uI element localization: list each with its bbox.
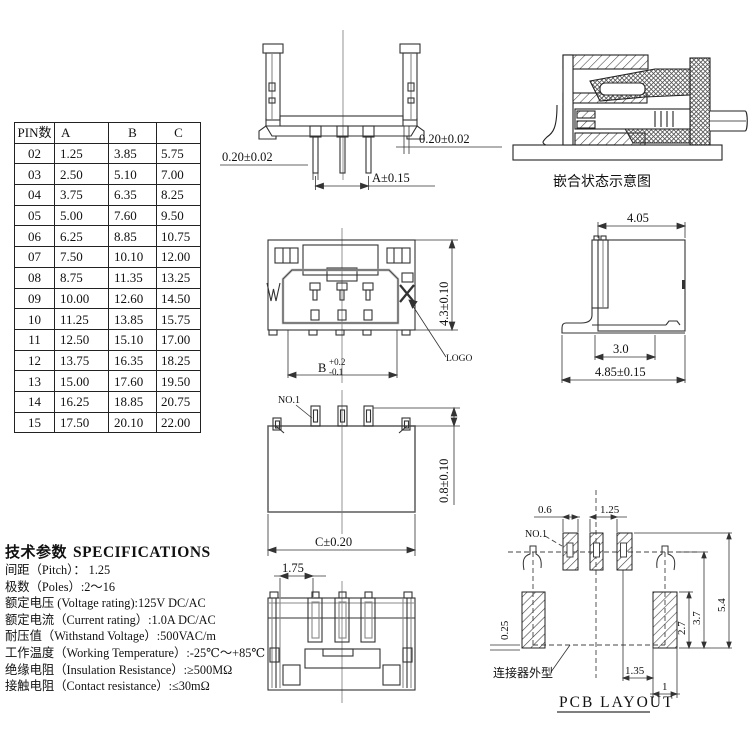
table-cell: 09 [15, 288, 55, 309]
spec-line: 耐压值（Withstand Voltage）:500VAC/m [5, 628, 273, 645]
specifications-title-en: SPECIFICATIONS [73, 544, 211, 561]
connector-outline-label: 连接器外型 [493, 665, 553, 680]
dim-b-plus: +0.2 [329, 357, 345, 367]
table-cell: 7.00 [157, 164, 201, 185]
table-row: 077.5010.1012.00 [15, 247, 201, 268]
table-cell: 14.50 [157, 288, 201, 309]
table-cell: 04 [15, 185, 55, 206]
table-cell: 3.85 [109, 143, 157, 164]
dim-pitch: 1.25 [600, 504, 620, 516]
spec-lines: 间距（Pitch）： 1.25极数（Poles）:2～16额定电压 (Volta… [5, 562, 273, 695]
table-cell: 19.50 [157, 371, 201, 392]
table-cell: 7.50 [55, 247, 109, 268]
table-cell: 5.10 [109, 164, 157, 185]
table-cell: 13.85 [109, 309, 157, 330]
table-cell: 2.50 [55, 164, 109, 185]
table-row: 1213.7516.3518.25 [15, 350, 201, 371]
pcb-pin1-label: NO.1 [525, 529, 547, 540]
table-cell: 08 [15, 267, 55, 288]
table-cell: 10.10 [109, 247, 157, 268]
table-cell: 12.50 [55, 329, 109, 350]
table-cell: 18.85 [109, 391, 157, 412]
table-cell: 20.10 [109, 412, 157, 433]
dim-pad-width: 0.6 [538, 504, 552, 516]
table-cell: 8.85 [109, 226, 157, 247]
table-cell: 12.60 [109, 288, 157, 309]
pin-table-header: PIN数 [15, 123, 55, 144]
table-cell: 8.25 [157, 185, 201, 206]
table-cell: 18.25 [157, 350, 201, 371]
dim-c: C±0.20 [315, 535, 352, 549]
table-cell: 16.35 [109, 350, 157, 371]
dim-mid-width: 3.0 [613, 342, 629, 356]
table-cell: 14 [15, 391, 55, 412]
drawing-front-section: 0.20±0.02 A±0.15 0.20±0.02 [220, 28, 505, 193]
table-row: 1011.2513.8515.75 [15, 309, 201, 330]
table-row: 1416.2518.8520.75 [15, 391, 201, 412]
table-cell: 10.00 [55, 288, 109, 309]
pin1-label: NO.1 [278, 395, 300, 406]
table-cell: 17.60 [109, 371, 157, 392]
dim-b-minus: -0.1 [329, 367, 343, 377]
table-cell: 15.75 [157, 309, 201, 330]
pin-table-header: C [157, 123, 201, 144]
pad-fitting-left [522, 592, 545, 648]
datasheet-page: PIN数ABC 021.253.855.75032.505.107.00043.… [0, 0, 750, 750]
table-row: 1112.5015.1017.00 [15, 329, 201, 350]
spec-line: 工作温度（Working Temperature）:-25℃～+85℃ [5, 645, 273, 662]
table-cell: 5.00 [55, 205, 109, 226]
dim-pin-height: 0.8±0.10 [437, 459, 451, 503]
dim-side-pad-width: 1 [662, 681, 668, 693]
table-cell: 7.60 [109, 205, 157, 226]
table-row: 066.258.8510.75 [15, 226, 201, 247]
table-row: 088.7511.3513.25 [15, 267, 201, 288]
dim-gap: 1.35 [625, 665, 645, 677]
pad-fitting-right [653, 592, 677, 648]
spec-line: 间距（Pitch）： 1.25 [5, 562, 273, 579]
dim-mid-height: 3.7 [691, 611, 703, 625]
pin-table-header: B [109, 123, 157, 144]
table-cell: 10 [15, 309, 55, 330]
drawing-back-view: NO.1 0.8±0.10 C±0.20 [246, 388, 480, 560]
pin-table-header-row: PIN数ABC [15, 123, 201, 144]
table-cell: 20.75 [157, 391, 201, 412]
fitting-left-outline [523, 546, 541, 570]
table-row: 055.007.609.50 [15, 205, 201, 226]
table-cell: 5.75 [157, 143, 201, 164]
table-row: 0910.0012.6014.50 [15, 288, 201, 309]
table-cell: 15.10 [109, 329, 157, 350]
spec-line: 绝缘电阻（Insulation Resistance）:≥500MΩ [5, 662, 273, 679]
dim-bottom-width: 4.85±0.15 [595, 365, 646, 379]
table-cell: 05 [15, 205, 55, 226]
dim-top-width: 4.05 [627, 211, 649, 225]
table-cell: 1.25 [55, 143, 109, 164]
table-cell: 11 [15, 329, 55, 350]
specifications-title-cn: 技术参数 [5, 545, 67, 561]
spec-line: 额定电压 (Voltage rating):125V DC/AC [5, 595, 273, 612]
table-cell: 13.25 [157, 267, 201, 288]
drawing-pcb-layout: 0.6 1.25 NO.1 0.25 2.7 3.7 5.4 1.35 1 连接… [478, 488, 750, 725]
table-cell: 06 [15, 226, 55, 247]
table-cell: 9.50 [157, 205, 201, 226]
fitting-right-outline [657, 546, 675, 570]
table-cell: 12 [15, 350, 55, 371]
table-row: 1315.0017.6019.50 [15, 371, 201, 392]
pin-table-header: A [55, 123, 109, 144]
table-cell: 3.75 [55, 185, 109, 206]
table-row: 1517.5020.1022.00 [15, 412, 201, 433]
pcb-layout-title: PCB LAYOUT [559, 694, 674, 711]
spec-line: 额定电流（Current rating）:1.0A DC/AC [5, 612, 273, 629]
logo-x-mark [400, 285, 414, 302]
mating-caption: 嵌合状态示意图 [553, 173, 651, 190]
pin-table-body: 021.253.855.75032.505.107.00043.756.358.… [15, 143, 201, 433]
table-cell: 13 [15, 371, 55, 392]
dim-height: 4.3±0.10 [437, 282, 451, 326]
table-cell: 07 [15, 247, 55, 268]
spec-line: 极数（Poles）:2～16 [5, 579, 273, 596]
pin-dimension-table: PIN数ABC 021.253.855.75032.505.107.00043.… [14, 122, 201, 433]
table-row: 043.756.358.25 [15, 185, 201, 206]
table-row: 032.505.107.00 [15, 164, 201, 185]
dim-a: A±0.15 [372, 171, 410, 185]
table-cell: 15.00 [55, 371, 109, 392]
drawing-bottom-view: 1.75 [246, 553, 480, 703]
table-cell: 6.25 [55, 226, 109, 247]
drawing-side-view: 4.05 3.0 4.85±0.15 [556, 198, 748, 388]
table-cell: 13.75 [55, 350, 109, 371]
table-cell: 16.25 [55, 391, 109, 412]
table-cell: 03 [15, 164, 55, 185]
table-cell: 02 [15, 143, 55, 164]
table-cell: 22.00 [157, 412, 201, 433]
table-cell: 11.25 [55, 309, 109, 330]
dim-left-offset: 0.25 [499, 620, 511, 640]
dim-end-gap: 1.75 [282, 561, 304, 575]
drawing-front-view: 4.3±0.10 B +0.2 -0.1 LOGO [246, 226, 480, 386]
dim-pin-width-left: 0.20±0.02 [222, 150, 273, 164]
table-cell: 12.00 [157, 247, 201, 268]
polarity-w-mark [267, 283, 280, 301]
table-row: 021.253.855.75 [15, 143, 201, 164]
dim-total-height: 5.4 [716, 598, 728, 612]
table-cell: 17.50 [55, 412, 109, 433]
table-cell: 8.75 [55, 267, 109, 288]
table-cell: 10.75 [157, 226, 201, 247]
table-cell: 6.35 [109, 185, 157, 206]
specifications-title: 技术参数SPECIFICATIONS [5, 541, 273, 562]
table-cell: 15 [15, 412, 55, 433]
table-cell: 11.35 [109, 267, 157, 288]
dim-b-letter: B [318, 361, 326, 375]
specifications-block: 技术参数SPECIFICATIONS 间距（Pitch）： 1.25极数（Pol… [5, 541, 273, 695]
dim-shell-right: 0.20±0.02 [419, 132, 470, 146]
table-cell: 17.00 [157, 329, 201, 350]
spec-line: 接触电阻（Contact resistance）:≤30mΩ [5, 678, 273, 695]
connector-outline-dashed [508, 490, 700, 678]
dim-pad-height: 2.7 [676, 621, 688, 635]
drawing-mating-section: 嵌合状态示意图 [505, 33, 750, 193]
logo-label: LOGO [446, 354, 473, 364]
